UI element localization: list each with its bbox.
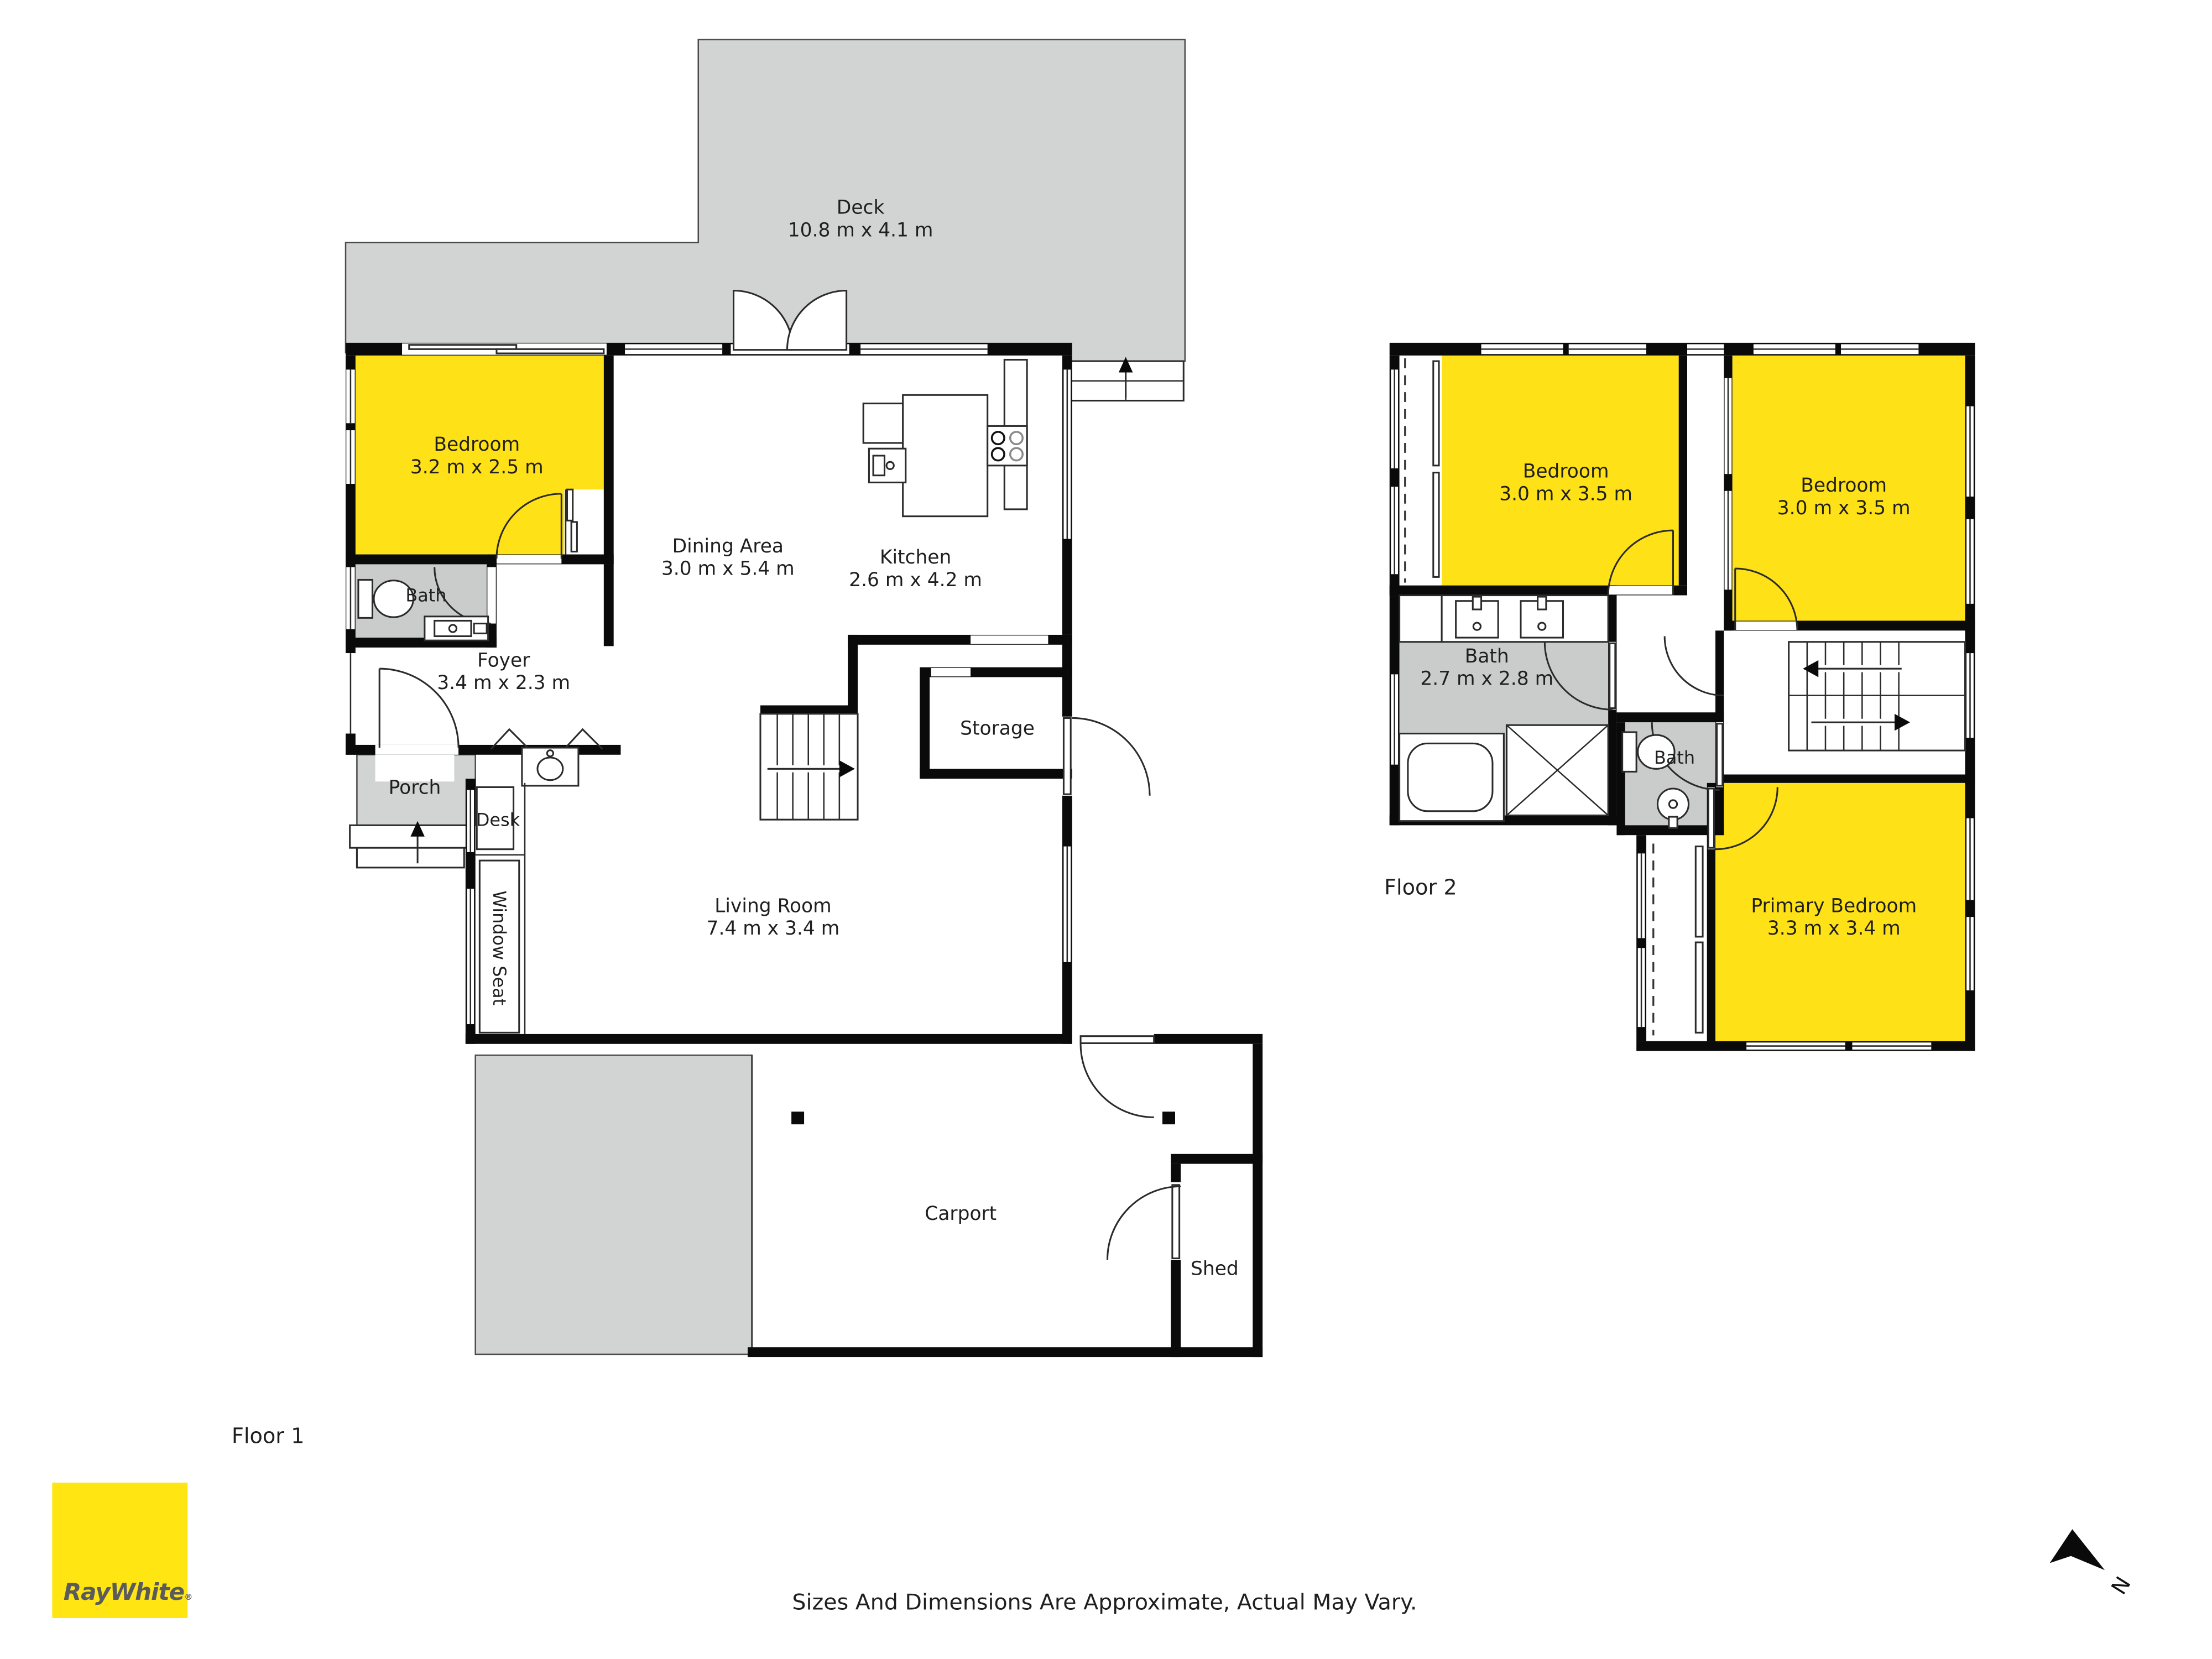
driveway-surface: [476, 1055, 752, 1354]
room-label-desk: Desk: [476, 809, 520, 831]
raywhite-wordmark: RayWhite®: [64, 1579, 192, 1605]
north-arrow-icon: [2050, 1529, 2105, 1570]
room-label-carport: Carport: [925, 1203, 997, 1226]
room-label-bath2-main: Bath2.7 m x 2.8 m: [1420, 645, 1553, 692]
room-label-primary: Primary Bedroom3.3 m x 3.4 m: [1751, 895, 1917, 942]
room-label-bath-f1: Bath: [405, 585, 446, 606]
disclaimer-text: Sizes And Dimensions Are Approximate, Ac…: [792, 1590, 1417, 1615]
room-label-porch: Porch: [389, 777, 441, 800]
floorplan-drawing: [0, 0, 2212, 1659]
room-label-window-seat: Window Seat: [489, 890, 510, 1005]
wardrobe-rail-left: [1405, 358, 1439, 583]
floor2-tag: Floor 2: [1384, 875, 1457, 900]
shower-icon: [1506, 725, 1608, 815]
stairs-f2: [1789, 642, 1965, 750]
room-label-deck: Deck10.8 m x 4.1 m: [788, 197, 933, 243]
room-label-bedroom2b: Bedroom3.0 m x 3.5 m: [1777, 474, 1911, 521]
floor1-tag: Floor 1: [232, 1423, 305, 1449]
room-label-storage: Storage: [960, 718, 1035, 741]
kitchen-island-icon: [863, 395, 987, 516]
room-label-bedroom2a: Bedroom3.0 m x 3.5 m: [1499, 461, 1632, 507]
cabinet-sink-icon: [522, 748, 578, 786]
floorplan-page: Deck10.8 m x 4.1 m Bedroom3.2 m x 2.5 m …: [0, 0, 2212, 1659]
room-label-bedroom-f1: Bedroom3.2 m x 2.5 m: [410, 434, 544, 481]
bedroom-closet-icon: [566, 489, 577, 554]
room-label-shed: Shed: [1191, 1258, 1239, 1281]
room-label-foyer: Foyer3.4 m x 2.3 m: [437, 650, 570, 696]
vanity-icon: [425, 617, 488, 640]
carport-post: [1162, 1112, 1175, 1124]
stairs-f1: [760, 714, 858, 820]
porch-steps: [350, 821, 471, 868]
bathtub-icon: [1400, 734, 1504, 821]
room-label-dining: Dining Area3.0 m x 5.4 m: [661, 535, 795, 582]
deck-steps: [1070, 357, 1184, 400]
floor1-surfaces: [346, 39, 1185, 1354]
room-label-kitchen: Kitchen2.6 m x 4.2 m: [849, 547, 982, 593]
room-label-bath2-ensuite: Bath: [1654, 747, 1695, 768]
raywhite-logo: RayWhite®: [52, 1483, 187, 1618]
carport-post: [791, 1112, 804, 1124]
primary-wardrobe: [1653, 843, 1703, 1035]
room-label-living: Living Room7.4 m x 3.4 m: [707, 895, 840, 942]
double-vanity-icon: [1400, 596, 1609, 642]
stove-icon: [988, 360, 1027, 509]
north-arrow: N: [2031, 1516, 2158, 1629]
